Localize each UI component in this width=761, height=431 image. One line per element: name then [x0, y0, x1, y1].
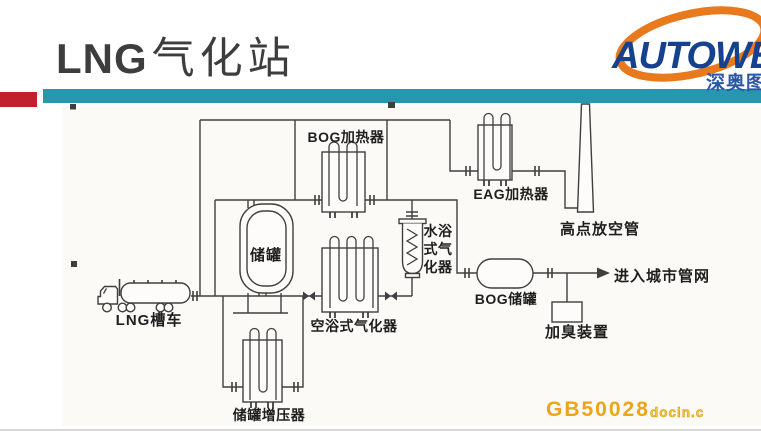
label-vent-stack: 高点放空管	[560, 220, 640, 238]
marker-square	[71, 261, 77, 267]
label-lng-truck: LNG槽车	[116, 311, 183, 329]
eag-heater	[478, 114, 512, 186]
process-flow-diagram: LNG槽车 储罐 BOG加热器 空浴式气化器 水浴 式气 化器 EAG加热器 高…	[0, 0, 761, 429]
label-water-bath-line1: 水浴	[424, 223, 453, 239]
label-bog-heater: BOG加热器	[308, 129, 385, 145]
label-city-network: 进入城市管网	[614, 267, 710, 285]
label-eag-heater: EAG加热器	[473, 186, 549, 202]
slide: { "slide": { "title_latin": "LNG", "titl…	[0, 0, 761, 431]
label-bog-tank: BOG储罐	[475, 291, 537, 307]
label-storage-tank: 储罐	[250, 246, 282, 264]
watermark-suffix: docin.c	[650, 405, 704, 420]
label-odorizer: 加臭装置	[544, 323, 609, 341]
marker-square	[70, 104, 76, 110]
marker-square	[388, 102, 395, 108]
bog-heater	[322, 142, 365, 218]
label-water-bath-line2: 式气	[424, 241, 453, 257]
label-water-bath-line3: 化器	[424, 259, 453, 275]
bog-tank	[477, 259, 533, 288]
watermark-code: GB50028	[546, 398, 650, 421]
air-bath-vaporizer	[322, 237, 378, 319]
tank-pressurizer	[243, 329, 282, 409]
odorizer-unit	[552, 302, 582, 322]
label-air-bath-vaporizer: 空浴式气化器	[311, 318, 398, 334]
label-tank-pressurizer: 储罐增压器	[232, 407, 306, 423]
